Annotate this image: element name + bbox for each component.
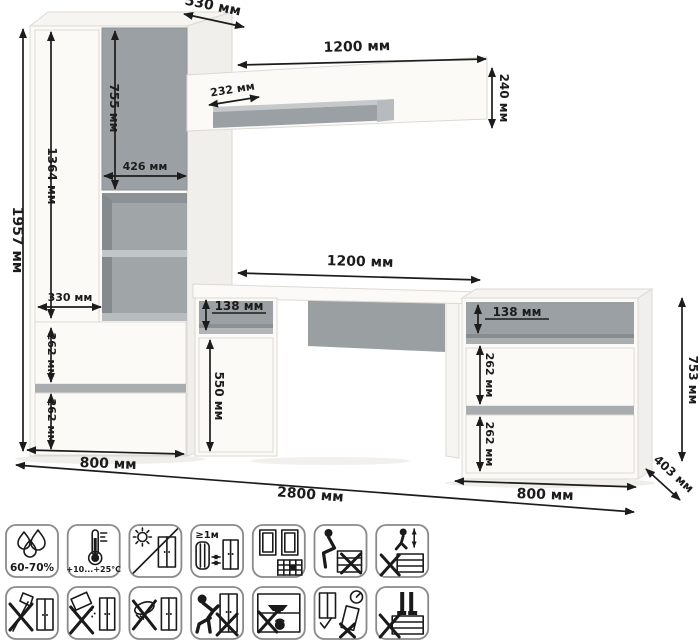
furniture-illustration: 530 мм 1200 мм 232 мм 240 мм 1957 мм 136… xyxy=(0,0,700,644)
heat-source-distance-icon: ≥1м xyxy=(191,525,243,577)
chest-top-face xyxy=(462,289,652,298)
dim-label-403: 403 мм xyxy=(651,452,697,495)
dim-label-1957: 1957 мм xyxy=(9,207,25,274)
niche-shelf xyxy=(102,250,187,257)
chest-gap-1 xyxy=(466,334,634,338)
no-jumping-icon xyxy=(376,525,428,577)
dim-label-262-w2: 262 мм xyxy=(45,399,58,444)
desk-drawer-gap xyxy=(199,324,273,328)
shelf-bracket xyxy=(377,99,394,122)
heat-distance-label: ≥1м xyxy=(195,530,219,541)
dim-label-800-right: 800 мм xyxy=(516,486,574,504)
chest-side-face xyxy=(638,289,652,479)
dim-label-426: 426 мм xyxy=(123,160,168,173)
desk-back-panel xyxy=(308,297,445,352)
niche-bottom xyxy=(102,313,187,321)
temperature-label: +10...+25°C xyxy=(66,565,121,574)
no-direct-sunlight-icon xyxy=(129,525,181,577)
chest-drawer-top xyxy=(466,302,634,334)
dim-label-262-c1: 262 мм xyxy=(483,353,496,398)
desk-leg-panel xyxy=(446,299,459,458)
dim-label-138-desk: 138 мм xyxy=(215,299,264,313)
furniture-diagram-page: 530 мм 1200 мм 232 мм 240 мм 1957 мм 136… xyxy=(0,0,700,644)
chest-strip-1 xyxy=(466,338,634,344)
dim-line-1200-desk xyxy=(238,273,480,280)
dim-label-753: 753 мм xyxy=(686,356,700,405)
dim-label-755: 755 мм xyxy=(107,84,121,133)
dim-label-262-w1: 262 мм xyxy=(45,333,58,378)
dim-label-1200-desk: 1200 мм xyxy=(327,253,394,271)
care-icons-row-1: 60-70% +10...+25°C xyxy=(6,525,428,577)
niche-top-shade xyxy=(102,193,187,203)
no-standing-on-drawers-icon xyxy=(376,587,428,639)
dim-label-240: 240 мм xyxy=(497,74,511,123)
dim-label-1364: 1364 мм xyxy=(45,147,59,204)
care-icons-row-2 xyxy=(6,587,428,639)
desk-drawer-strip xyxy=(199,328,273,334)
temperature-icon: +10...+25°C xyxy=(66,525,121,577)
mounting-level-icon xyxy=(315,587,367,639)
dim-label-330: 330 мм xyxy=(48,291,93,304)
no-sharp-tools-icon xyxy=(6,587,58,639)
no-sitting-icon xyxy=(315,525,367,577)
dim-label-550: 550 мм xyxy=(212,372,226,421)
dim-label-262-c2: 262 мм xyxy=(483,422,496,467)
humidity-icon: 60-70% xyxy=(6,525,58,577)
dim-label-2800: 2800 мм xyxy=(276,484,344,505)
dim-label-138-chest: 138 мм xyxy=(493,305,542,319)
no-pushing-icon xyxy=(191,587,243,639)
no-wet-cleaning-icon xyxy=(129,587,181,639)
no-abrasive-cleaners-icon xyxy=(68,587,120,639)
wardrobe-left-door xyxy=(35,30,99,322)
dim-label-1200-shelf: 1200 мм xyxy=(323,38,390,56)
wardrobe-drawer-strip xyxy=(35,384,186,393)
humidity-label: 60-70% xyxy=(10,562,55,574)
chest-strip-2 xyxy=(466,406,634,415)
ventilation-icon xyxy=(253,525,305,577)
no-overloading-icon xyxy=(253,587,305,639)
